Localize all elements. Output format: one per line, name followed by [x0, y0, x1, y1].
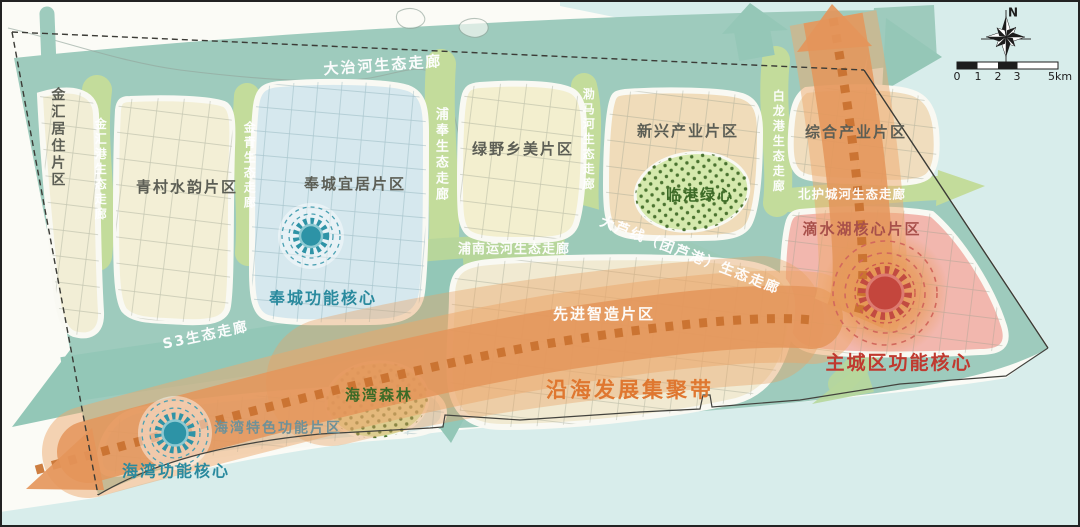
green-space-label-haiwan-forest: 海湾森林: [345, 388, 413, 404]
district-label-xianjinzhizao: 先进智造片区: [553, 307, 655, 323]
scalebar-tick-3: 3: [1014, 71, 1021, 83]
core-label-fengcheng: 奉城功能核心: [269, 291, 377, 308]
map-labels: 大治河生态走廊 金汇港生态走廊 金青生态走廊 浦奉生态走廊 泐马河生态走廊 白龙…: [0, 0, 1080, 527]
belt-label: 沿海发展集聚带: [546, 379, 714, 401]
scalebar-tick-1: 1: [975, 71, 982, 83]
corridor-label-bailonggang: 白龙港生态走廊: [772, 90, 785, 195]
district-label-lvye: 绿野乡美片区: [472, 142, 574, 158]
corridor-label-lemahe: 泐马河生态走廊: [582, 88, 595, 193]
district-label-zonghe: 综合产业片区: [805, 125, 907, 141]
scalebar-end-label: 5km: [1048, 71, 1072, 83]
corridor-label-jinqing: 金青生态走廊: [243, 121, 256, 211]
corridor-label-beihuchenghe: 北护城河生态走廊: [798, 187, 906, 200]
core-label-main-city: 主城区功能核心: [825, 354, 972, 374]
corridor-label-s3: S3生态走廊: [162, 320, 251, 353]
corridor-label-punanyunhe: 浦南运河生态走廊: [458, 243, 570, 257]
district-label-fengcheng: 奉城宜居片区: [304, 177, 406, 193]
district-label-qingcun: 青村水韵片区: [136, 180, 238, 196]
district-label-haiwan-tese: 海湾特色功能片区: [214, 422, 342, 437]
core-label-haiwan: 海湾功能核心: [122, 464, 230, 481]
scalebar-tick-0: 0: [954, 71, 961, 83]
green-space-label-lingang: 临港绿心: [666, 188, 734, 204]
scalebar-tick-2: 2: [995, 71, 1002, 83]
planning-map: 大治河生态走廊 金汇港生态走廊 金青生态走廊 浦奉生态走廊 泐马河生态走廊 白龙…: [0, 0, 1080, 527]
corridor-label-daluxian: 大芦线（团芦港）生态走廊: [598, 215, 783, 298]
corridor-label-jinhuigang: 金汇港生态走廊: [94, 118, 107, 223]
corridor-label-dazhihe: 大治河生态走廊: [323, 54, 443, 78]
district-label-jinhui: 金汇居住片区: [50, 87, 65, 189]
corridor-label-pufeng: 浦奉生态走廊: [433, 107, 447, 203]
district-label-dishuihu: 滴水湖核心片区: [802, 222, 921, 238]
compass-north-label: N: [1008, 7, 1018, 20]
district-label-xinxing: 新兴产业片区: [637, 124, 739, 140]
